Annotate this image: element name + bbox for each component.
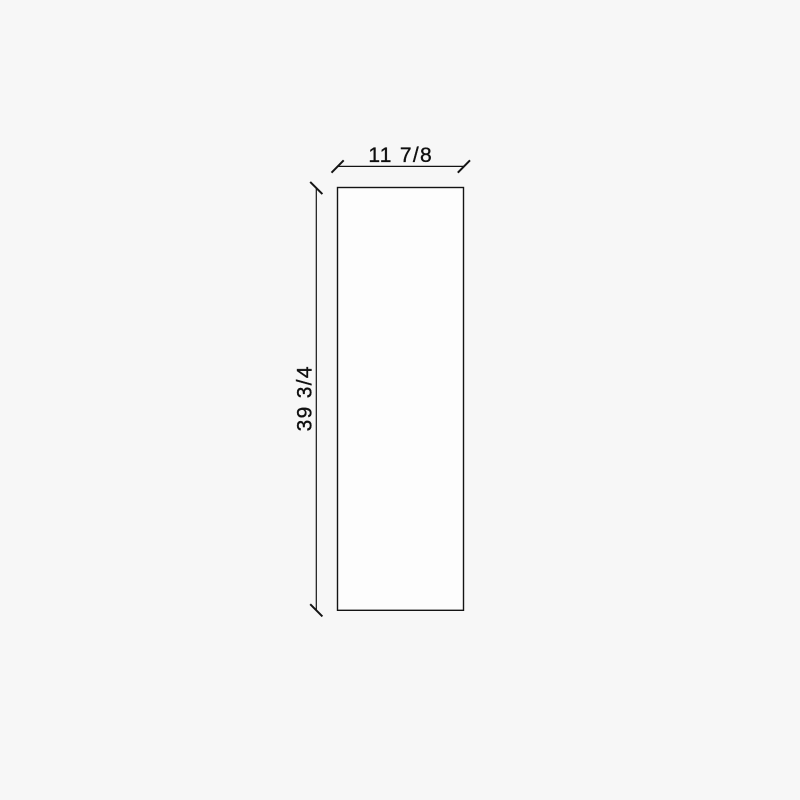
svg-text:11 7/8: 11 7/8 (368, 144, 433, 167)
svg-text:39 3/4: 39 3/4 (294, 365, 317, 431)
